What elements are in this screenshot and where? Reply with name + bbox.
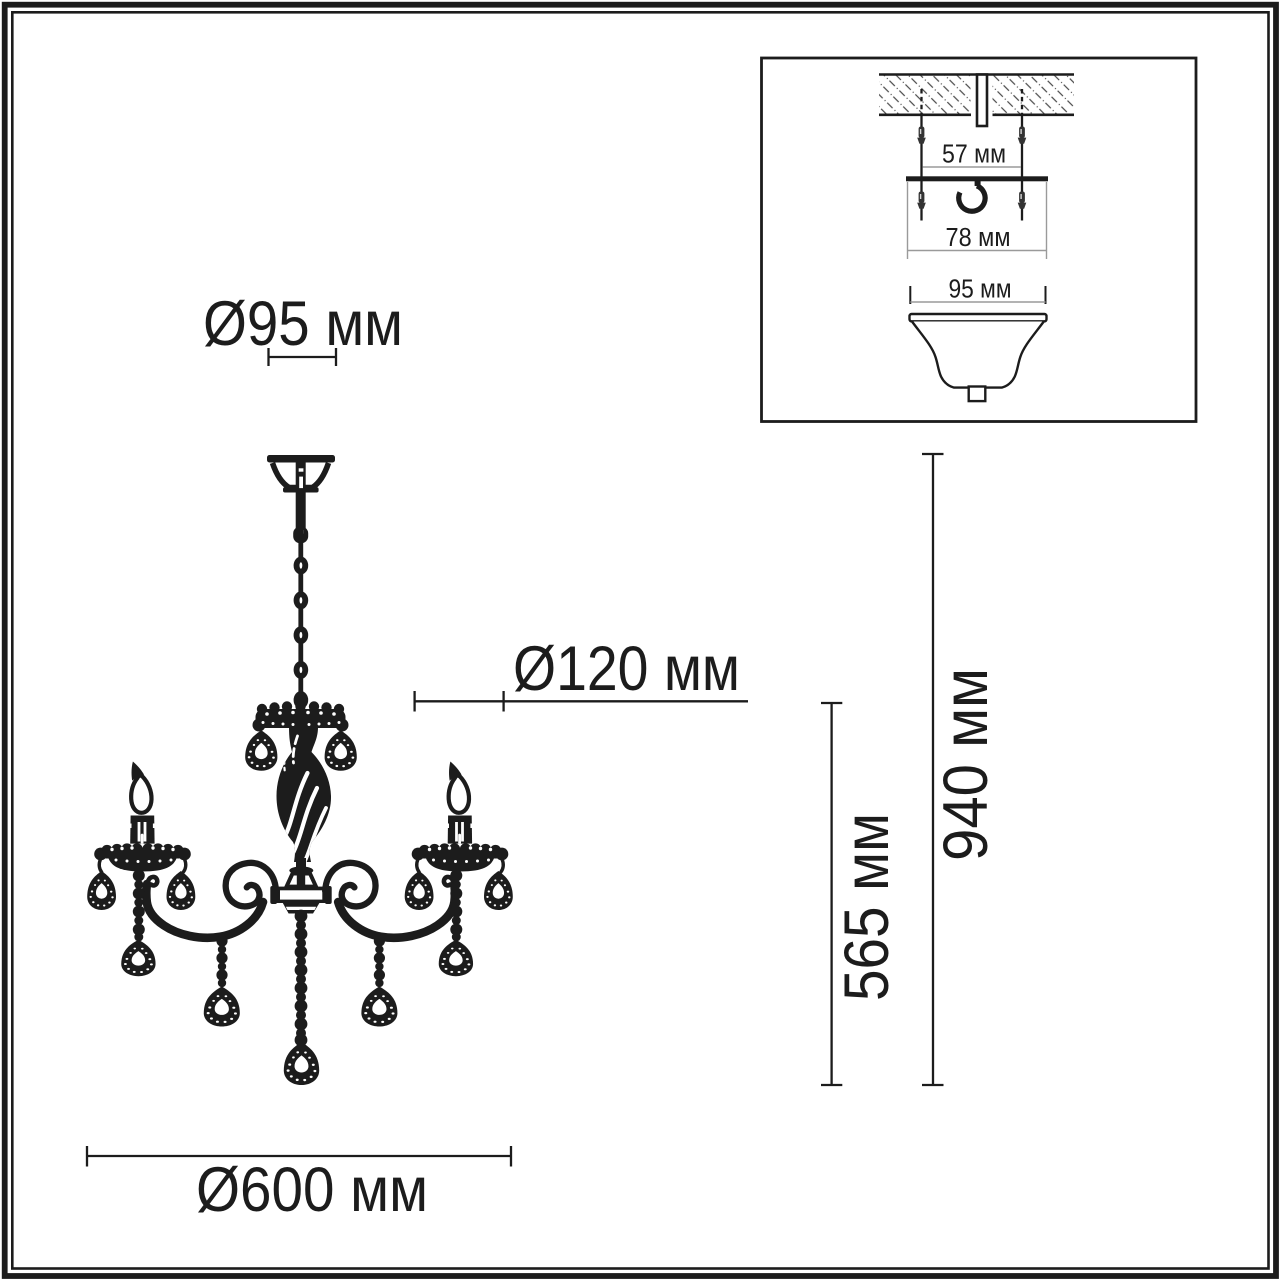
svg-text:78 мм: 78 мм [946,224,1011,252]
svg-text:Ø120 мм: Ø120 мм [513,634,740,704]
svg-text:95 мм: 95 мм [949,276,1012,304]
svg-text:57 мм: 57 мм [942,141,1006,169]
svg-text:940 мм: 940 мм [931,668,1001,861]
svg-text:565 мм: 565 мм [832,813,902,1001]
svg-text:Ø600 мм: Ø600 мм [196,1155,428,1225]
svg-text:Ø95 мм: Ø95 мм [203,289,403,359]
